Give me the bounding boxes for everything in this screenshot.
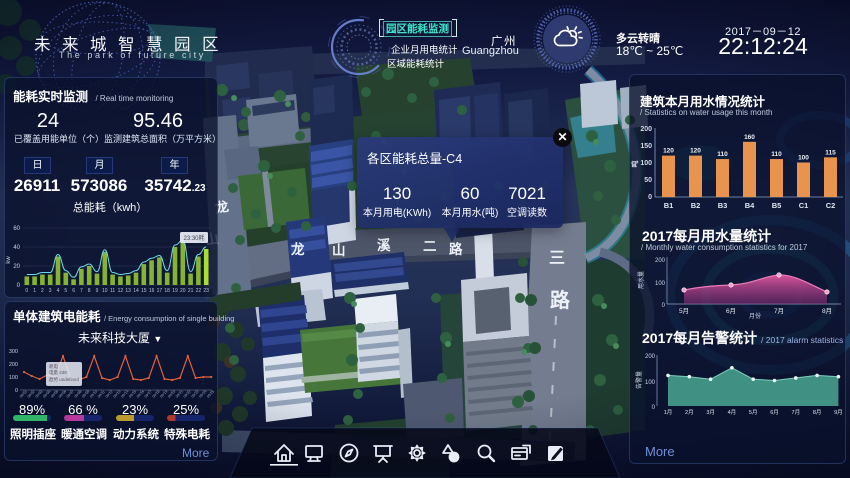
svg-text:B3: B3 xyxy=(718,201,728,210)
svg-text:09-13: 09-13 xyxy=(112,390,121,399)
svg-text:5月: 5月 xyxy=(749,409,758,416)
svg-text:C2: C2 xyxy=(826,201,836,210)
svg-text:100: 100 xyxy=(9,375,18,381)
svg-text:1: 1 xyxy=(33,288,36,294)
svg-text:120: 120 xyxy=(663,148,674,155)
svg-text:14: 14 xyxy=(133,288,139,294)
svg-text:120: 120 xyxy=(690,148,701,155)
svg-text:8: 8 xyxy=(88,288,91,294)
svg-text:7月: 7月 xyxy=(792,409,801,416)
svg-text:09-25: 09-25 xyxy=(206,390,215,399)
svg-text:09-03: 09-03 xyxy=(34,390,43,399)
svg-text:115: 115 xyxy=(825,149,836,156)
svg-text:100: 100 xyxy=(798,155,809,162)
svg-text:耗电: 耗电 xyxy=(49,363,58,370)
svg-text:0: 0 xyxy=(662,303,666,309)
svg-text:110: 110 xyxy=(717,151,728,158)
svg-text:9: 9 xyxy=(96,288,99,294)
svg-text:23: 23 xyxy=(203,288,209,294)
svg-text:110: 110 xyxy=(771,151,782,158)
svg-text:200: 200 xyxy=(640,126,652,133)
svg-text:18: 18 xyxy=(164,288,170,294)
svg-text:3月: 3月 xyxy=(706,409,715,416)
svg-text:吨: 吨 xyxy=(630,161,639,168)
svg-text:0: 0 xyxy=(25,288,28,294)
svg-text:19: 19 xyxy=(172,288,178,294)
svg-text:09-24: 09-24 xyxy=(198,390,207,399)
svg-text:09-10: 09-10 xyxy=(89,390,98,399)
svg-text:趋势 undefined: 趋势 undefined xyxy=(49,376,80,383)
svg-text:0: 0 xyxy=(648,194,652,201)
svg-text:B1: B1 xyxy=(664,201,674,210)
svg-text:09-06: 09-06 xyxy=(58,390,67,399)
svg-text:09-15: 09-15 xyxy=(128,390,137,399)
svg-text:09-21: 09-21 xyxy=(175,390,184,399)
svg-text:22: 22 xyxy=(196,288,202,294)
svg-text:8月: 8月 xyxy=(813,409,822,416)
svg-text:2月: 2月 xyxy=(685,409,694,416)
svg-text:09-23: 09-23 xyxy=(190,390,199,399)
svg-text:C1: C1 xyxy=(799,201,809,210)
svg-text:12: 12 xyxy=(118,288,124,294)
svg-text:7: 7 xyxy=(80,288,83,294)
svg-text:09-14: 09-14 xyxy=(120,390,129,399)
svg-text:100: 100 xyxy=(655,281,666,287)
svg-text:电量 238: 电量 238 xyxy=(49,369,67,376)
svg-text:kw: kw xyxy=(6,256,12,264)
svg-text:100: 100 xyxy=(645,380,656,386)
svg-text:20: 20 xyxy=(13,264,20,270)
svg-text:0: 0 xyxy=(15,388,18,394)
svg-text:09-20: 09-20 xyxy=(167,390,176,399)
svg-text:5: 5 xyxy=(64,288,67,294)
svg-text:6月: 6月 xyxy=(770,409,779,416)
svg-text:300: 300 xyxy=(9,349,18,355)
svg-text:23:30耗: 23:30耗 xyxy=(183,234,204,242)
svg-text:9月: 9月 xyxy=(834,409,843,416)
svg-text:17: 17 xyxy=(157,288,163,294)
svg-text:4: 4 xyxy=(57,288,60,294)
svg-text:6: 6 xyxy=(72,288,75,294)
svg-text:6月: 6月 xyxy=(726,307,736,315)
svg-text:告警量: 告警量 xyxy=(635,371,643,389)
svg-text:B4: B4 xyxy=(745,201,755,210)
svg-text:09-11: 09-11 xyxy=(97,390,106,399)
svg-text:0: 0 xyxy=(652,405,656,411)
svg-text:4月: 4月 xyxy=(728,409,737,416)
svg-text:150: 150 xyxy=(640,143,652,150)
svg-text:09-19: 09-19 xyxy=(159,390,168,399)
svg-text:100: 100 xyxy=(640,160,652,167)
svg-text:09-17: 09-17 xyxy=(144,390,153,399)
svg-text:60: 60 xyxy=(13,226,20,232)
svg-text:16: 16 xyxy=(149,288,155,294)
svg-text:09-04: 09-04 xyxy=(42,390,51,399)
svg-text:09-08: 09-08 xyxy=(73,390,82,399)
svg-text:40: 40 xyxy=(13,245,20,251)
svg-text:8月: 8月 xyxy=(822,307,832,315)
svg-text:09-02: 09-02 xyxy=(27,390,36,399)
svg-text:09-12: 09-12 xyxy=(105,390,114,399)
svg-text:13: 13 xyxy=(125,288,131,294)
svg-text:1月: 1月 xyxy=(664,409,673,416)
svg-text:160: 160 xyxy=(744,134,755,141)
svg-text:B2: B2 xyxy=(691,201,701,210)
svg-text:B5: B5 xyxy=(772,201,782,210)
svg-text:21: 21 xyxy=(188,288,194,294)
svg-text:200: 200 xyxy=(655,258,666,264)
svg-text:09-01: 09-01 xyxy=(19,390,28,399)
svg-text:15: 15 xyxy=(141,288,147,294)
svg-text:09-05: 09-05 xyxy=(50,390,59,399)
svg-text:用水量: 用水量 xyxy=(637,271,645,289)
svg-text:5月: 5月 xyxy=(679,307,689,315)
svg-text:09-18: 09-18 xyxy=(151,390,160,399)
svg-text:200: 200 xyxy=(645,354,656,360)
svg-text:50: 50 xyxy=(644,177,652,184)
svg-text:月份: 月份 xyxy=(749,312,761,320)
svg-text:0: 0 xyxy=(17,283,21,289)
svg-text:11: 11 xyxy=(110,288,115,294)
svg-text:200: 200 xyxy=(9,362,18,368)
svg-text:3: 3 xyxy=(49,288,52,294)
svg-text:09-09: 09-09 xyxy=(81,390,90,399)
svg-text:7月: 7月 xyxy=(774,307,784,315)
svg-text:09-16: 09-16 xyxy=(136,390,145,399)
svg-text:20: 20 xyxy=(180,288,186,294)
svg-text:2: 2 xyxy=(41,288,44,294)
svg-text:10: 10 xyxy=(102,288,108,294)
svg-text:09-07: 09-07 xyxy=(66,390,75,399)
svg-text:09-22: 09-22 xyxy=(183,390,192,399)
